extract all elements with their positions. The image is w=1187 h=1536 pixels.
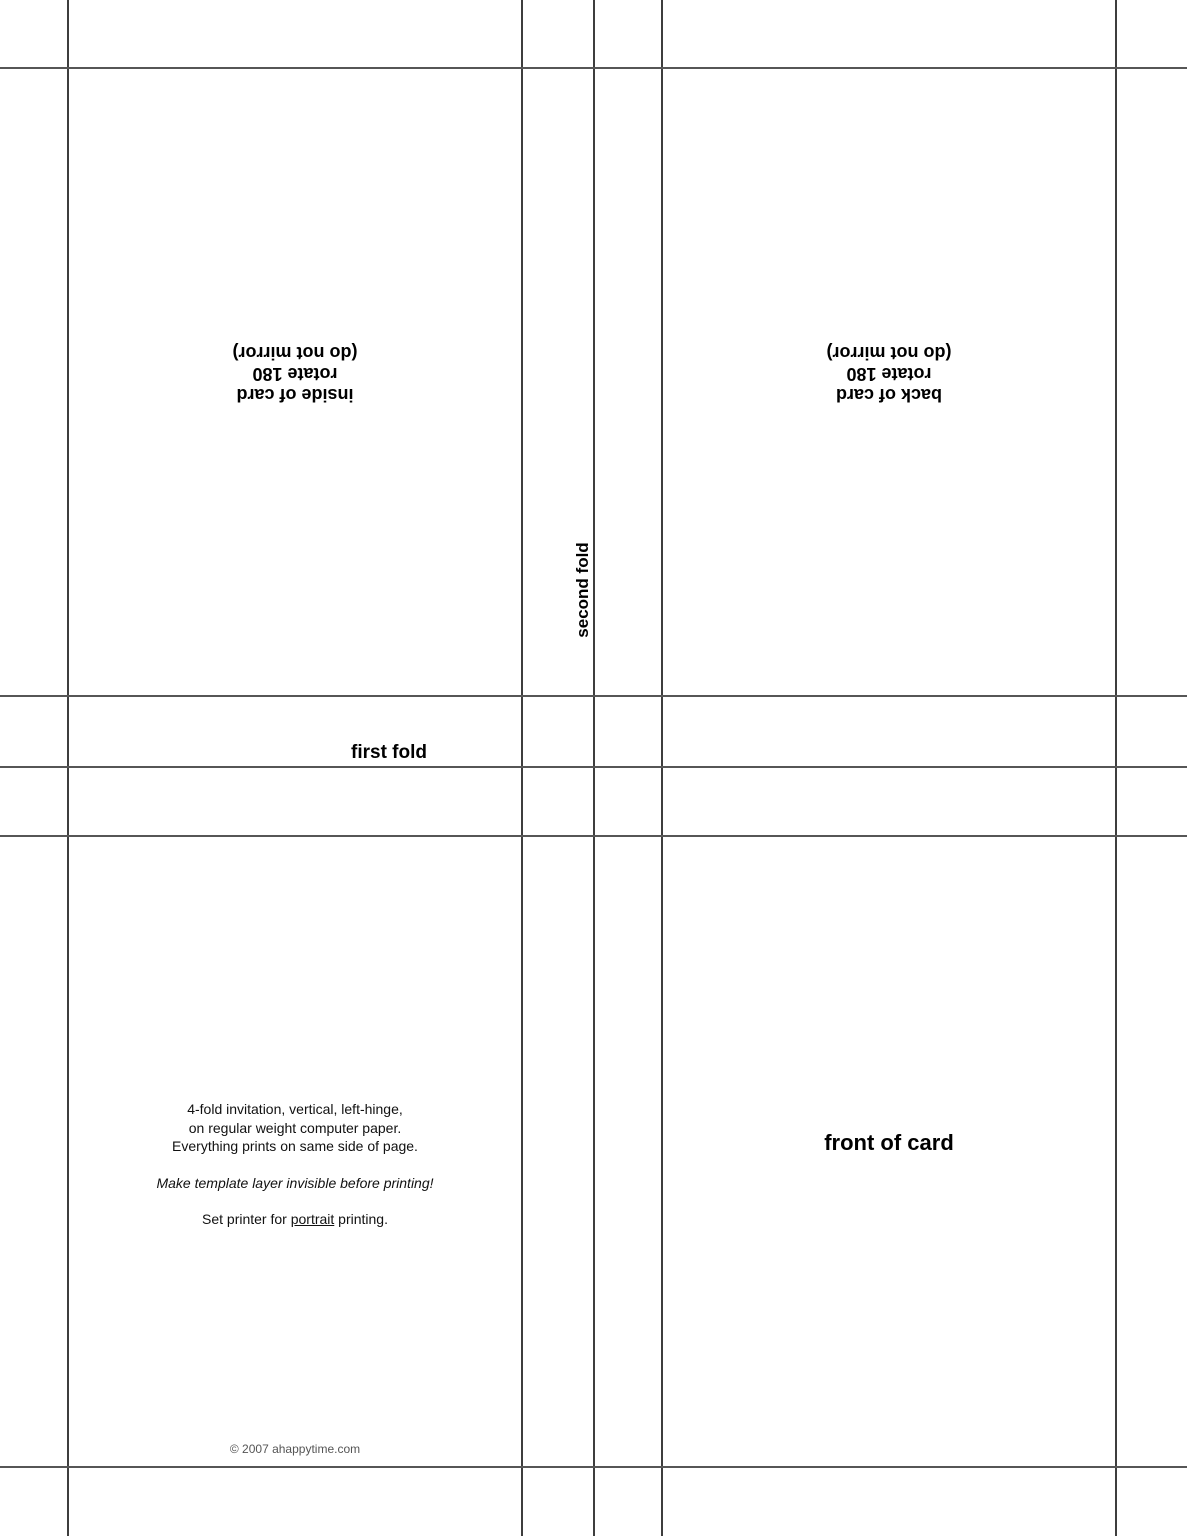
instructions-template-warning: Make template layer invisible before pri… xyxy=(68,1174,522,1193)
cut-line-vertical-left xyxy=(67,0,69,1536)
inside-of-card-label: inside of card rotate 180 (do not mirror… xyxy=(68,342,522,405)
fold-line-vertical-inner-right xyxy=(661,0,663,1536)
first-fold-line xyxy=(0,766,1187,768)
cut-line-horizontal-top xyxy=(0,67,1187,69)
printer-setting-prefix: Set printer for xyxy=(202,1211,291,1227)
inside-label-line3: (do not mirror) xyxy=(68,342,522,363)
second-fold-line xyxy=(593,0,595,1536)
fold-line-horizontal-lower xyxy=(0,835,1187,837)
instructions-line1: 4-fold invitation, vertical, left-hinge, xyxy=(68,1100,522,1119)
front-of-card-label: front of card xyxy=(662,1130,1116,1156)
back-of-card-label: back of card rotate 180 (do not mirror) xyxy=(662,342,1116,405)
fold-line-vertical-inner-left xyxy=(521,0,523,1536)
copyright-text: © 2007 ahappytime.com xyxy=(68,1442,522,1456)
first-fold-label: first fold xyxy=(351,742,427,764)
card-template-page: inside of card rotate 180 (do not mirror… xyxy=(0,0,1187,1536)
inside-label-line1: inside of card xyxy=(68,384,522,405)
back-label-line3: (do not mirror) xyxy=(662,342,1116,363)
printer-setting-suffix: printing. xyxy=(334,1211,388,1227)
instructions-line2: on regular weight computer paper. xyxy=(68,1119,522,1138)
inside-label-line2: rotate 180 xyxy=(68,363,522,384)
instructions-line3: Everything prints on same side of page. xyxy=(68,1137,522,1156)
second-fold-label: second fold xyxy=(573,542,593,637)
back-label-line2: rotate 180 xyxy=(662,363,1116,384)
printing-instructions: 4-fold invitation, vertical, left-hinge,… xyxy=(68,1100,522,1229)
instructions-printer-setting: Set printer for portrait printing. xyxy=(68,1210,522,1229)
printer-setting-portrait: portrait xyxy=(291,1211,335,1227)
cut-line-horizontal-bottom xyxy=(0,1466,1187,1468)
back-label-line1: back of card xyxy=(662,384,1116,405)
fold-line-horizontal-upper xyxy=(0,695,1187,697)
cut-line-vertical-right xyxy=(1115,0,1117,1536)
